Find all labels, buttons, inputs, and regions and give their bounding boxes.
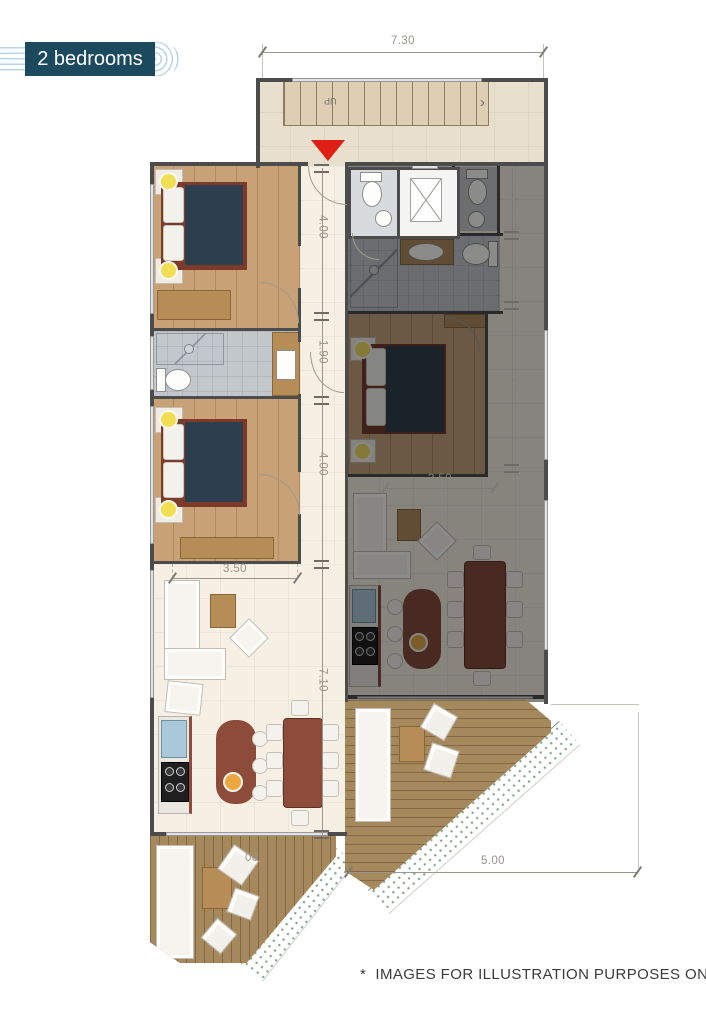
living-kitchen-dining [152, 564, 345, 832]
wall [150, 162, 308, 166]
staircase: UP [283, 80, 489, 126]
dimension-tick [314, 830, 329, 839]
disclaimer-text: * IMAGES FOR ILLUSTRATION PURPOSES ONLY [360, 966, 706, 983]
washbasin-icon [468, 211, 485, 228]
chair-icon [447, 601, 464, 618]
lamp-icon [353, 442, 372, 461]
wall [256, 78, 260, 168]
chair-icon [447, 571, 464, 588]
dining-table-icon [283, 718, 323, 808]
wall [298, 166, 301, 246]
toilet-icon [462, 243, 490, 265]
wall [485, 314, 488, 477]
wall [298, 514, 301, 564]
bed-icon [386, 346, 444, 432]
dimension-tick [314, 560, 329, 569]
dimension-tick [504, 464, 519, 473]
bathroom [152, 331, 300, 396]
dim-left-3: 4.00 [316, 452, 328, 476]
toilet-icon [466, 169, 488, 179]
wall [298, 394, 301, 472]
dimension-tick [314, 396, 329, 405]
washbasin-icon [408, 243, 444, 261]
dimension-line [385, 488, 495, 489]
chair-icon [291, 810, 309, 826]
window [166, 832, 328, 836]
bed-icon [185, 422, 243, 502]
dimension-tick [314, 312, 329, 321]
lamp-icon [353, 340, 372, 359]
dim-bottom-width: 5.00 [348, 856, 638, 868]
elevator-cross-icon [411, 179, 441, 221]
bar-stool-icon [387, 599, 403, 615]
chair-icon [322, 780, 339, 797]
badge-stripes-decoration [0, 47, 25, 71]
chair-icon [266, 780, 283, 797]
burner-icon [165, 783, 174, 792]
stairs-direction-icon: › [480, 94, 485, 111]
window [544, 330, 548, 460]
burner-icon [176, 783, 185, 792]
elevator [397, 167, 460, 239]
wall [298, 288, 301, 342]
sofa-icon [164, 648, 226, 680]
dim-living-width-left: 3.50 [172, 564, 298, 576]
bar-stool-icon [387, 653, 403, 669]
stove-icon [352, 627, 378, 665]
wall [346, 162, 548, 166]
wc-right [455, 167, 497, 231]
dimension-tick [504, 301, 519, 310]
chair-icon [266, 752, 283, 769]
floor-plan-canvas: 2 bedrooms UP › [0, 0, 706, 1024]
burner-icon [355, 632, 364, 641]
washbasin-icon [375, 210, 392, 227]
chair-icon [506, 571, 523, 588]
chair-icon [506, 601, 523, 618]
wall [345, 162, 348, 702]
burner-icon [355, 647, 364, 656]
wall [497, 165, 500, 233]
kitchen-island [403, 589, 441, 669]
unit-type-badge: 2 bedrooms [25, 42, 155, 76]
dimension-line [348, 872, 638, 873]
dimension-extension [638, 712, 639, 868]
lamp-icon [159, 172, 178, 191]
stove-icon [161, 762, 189, 802]
pillow-icon [366, 388, 386, 426]
cube-stool-icon [423, 742, 460, 779]
dining-table-icon [464, 561, 506, 669]
dresser-icon [180, 537, 274, 559]
dim-left-2: 1.90 [316, 340, 328, 364]
lamp-icon [159, 500, 178, 519]
chair-icon [447, 631, 464, 648]
elevator-car [410, 178, 442, 222]
outdoor-sofa-icon [156, 845, 194, 959]
pillow-icon [163, 462, 184, 498]
dim-top-width: 7.30 [262, 36, 544, 48]
dimension-line [512, 168, 513, 470]
dimension-extension [551, 704, 639, 705]
coffee-table-icon [397, 509, 421, 541]
window [544, 500, 548, 650]
outdoor-sofa-icon [355, 708, 391, 822]
dimension-line [262, 52, 544, 53]
pillow-icon [163, 187, 184, 223]
chair-icon [506, 631, 523, 648]
cube-stool-icon [420, 703, 458, 741]
burner-icon [366, 647, 375, 656]
dimension-tick [504, 231, 519, 240]
dim-left-1: 4.00 [316, 215, 328, 239]
lamp-icon [159, 410, 178, 429]
armchair-icon [164, 680, 203, 716]
coffee-table-icon [210, 594, 236, 628]
window [292, 78, 482, 82]
burner-icon [176, 767, 185, 776]
window [150, 406, 154, 544]
washbasin-icon [276, 350, 296, 380]
burner-icon [366, 632, 375, 641]
chair-icon [473, 671, 491, 686]
dimension-line [172, 578, 298, 579]
toilet-icon [165, 369, 191, 391]
wall [152, 396, 301, 399]
roast-dish-icon [223, 772, 243, 792]
window [150, 570, 154, 698]
pillow-icon [163, 424, 184, 460]
pillow-icon [163, 225, 184, 261]
stairs-up-label: UP [324, 96, 337, 106]
chair-icon [322, 724, 339, 741]
dim-left-4: 7.10 [316, 668, 328, 692]
lamp-icon [159, 261, 178, 280]
badge-rings-decoration [155, 42, 179, 76]
shower-drain-icon [369, 265, 379, 275]
shower-drain-icon [184, 344, 194, 354]
dimension-line [322, 168, 323, 836]
burner-icon [165, 767, 174, 776]
chair-icon [322, 752, 339, 769]
wc-left [348, 167, 403, 239]
dim-right-1: 1.75 [506, 186, 518, 210]
dim-terrace-partial: 00 [245, 853, 259, 865]
window [150, 184, 154, 314]
outdoor-table-icon [399, 726, 425, 762]
dim-right-3: 4.00 [506, 372, 518, 396]
dimension-tick [314, 164, 329, 173]
chair-icon [291, 700, 309, 716]
sofa-icon [353, 551, 411, 579]
armchair-icon [417, 521, 457, 561]
cube-stool-icon [201, 918, 238, 955]
window [357, 696, 533, 699]
kitchen-sink-icon [161, 720, 187, 758]
window [150, 336, 154, 390]
dim-living-width-right: 3.50 [385, 474, 495, 486]
entrance-marker-icon [311, 140, 345, 161]
wall [152, 328, 301, 331]
bed-icon [185, 185, 243, 265]
chair-icon [266, 724, 283, 741]
kitchen-sink-icon [352, 589, 376, 623]
dim-right-2: 1.90 [506, 256, 518, 280]
roast-dish-icon [409, 633, 428, 652]
bench-icon [157, 290, 231, 320]
bar-stool-icon [387, 626, 403, 642]
chair-icon [473, 545, 491, 560]
toilet-icon [362, 181, 382, 207]
toilet-icon [468, 179, 487, 205]
